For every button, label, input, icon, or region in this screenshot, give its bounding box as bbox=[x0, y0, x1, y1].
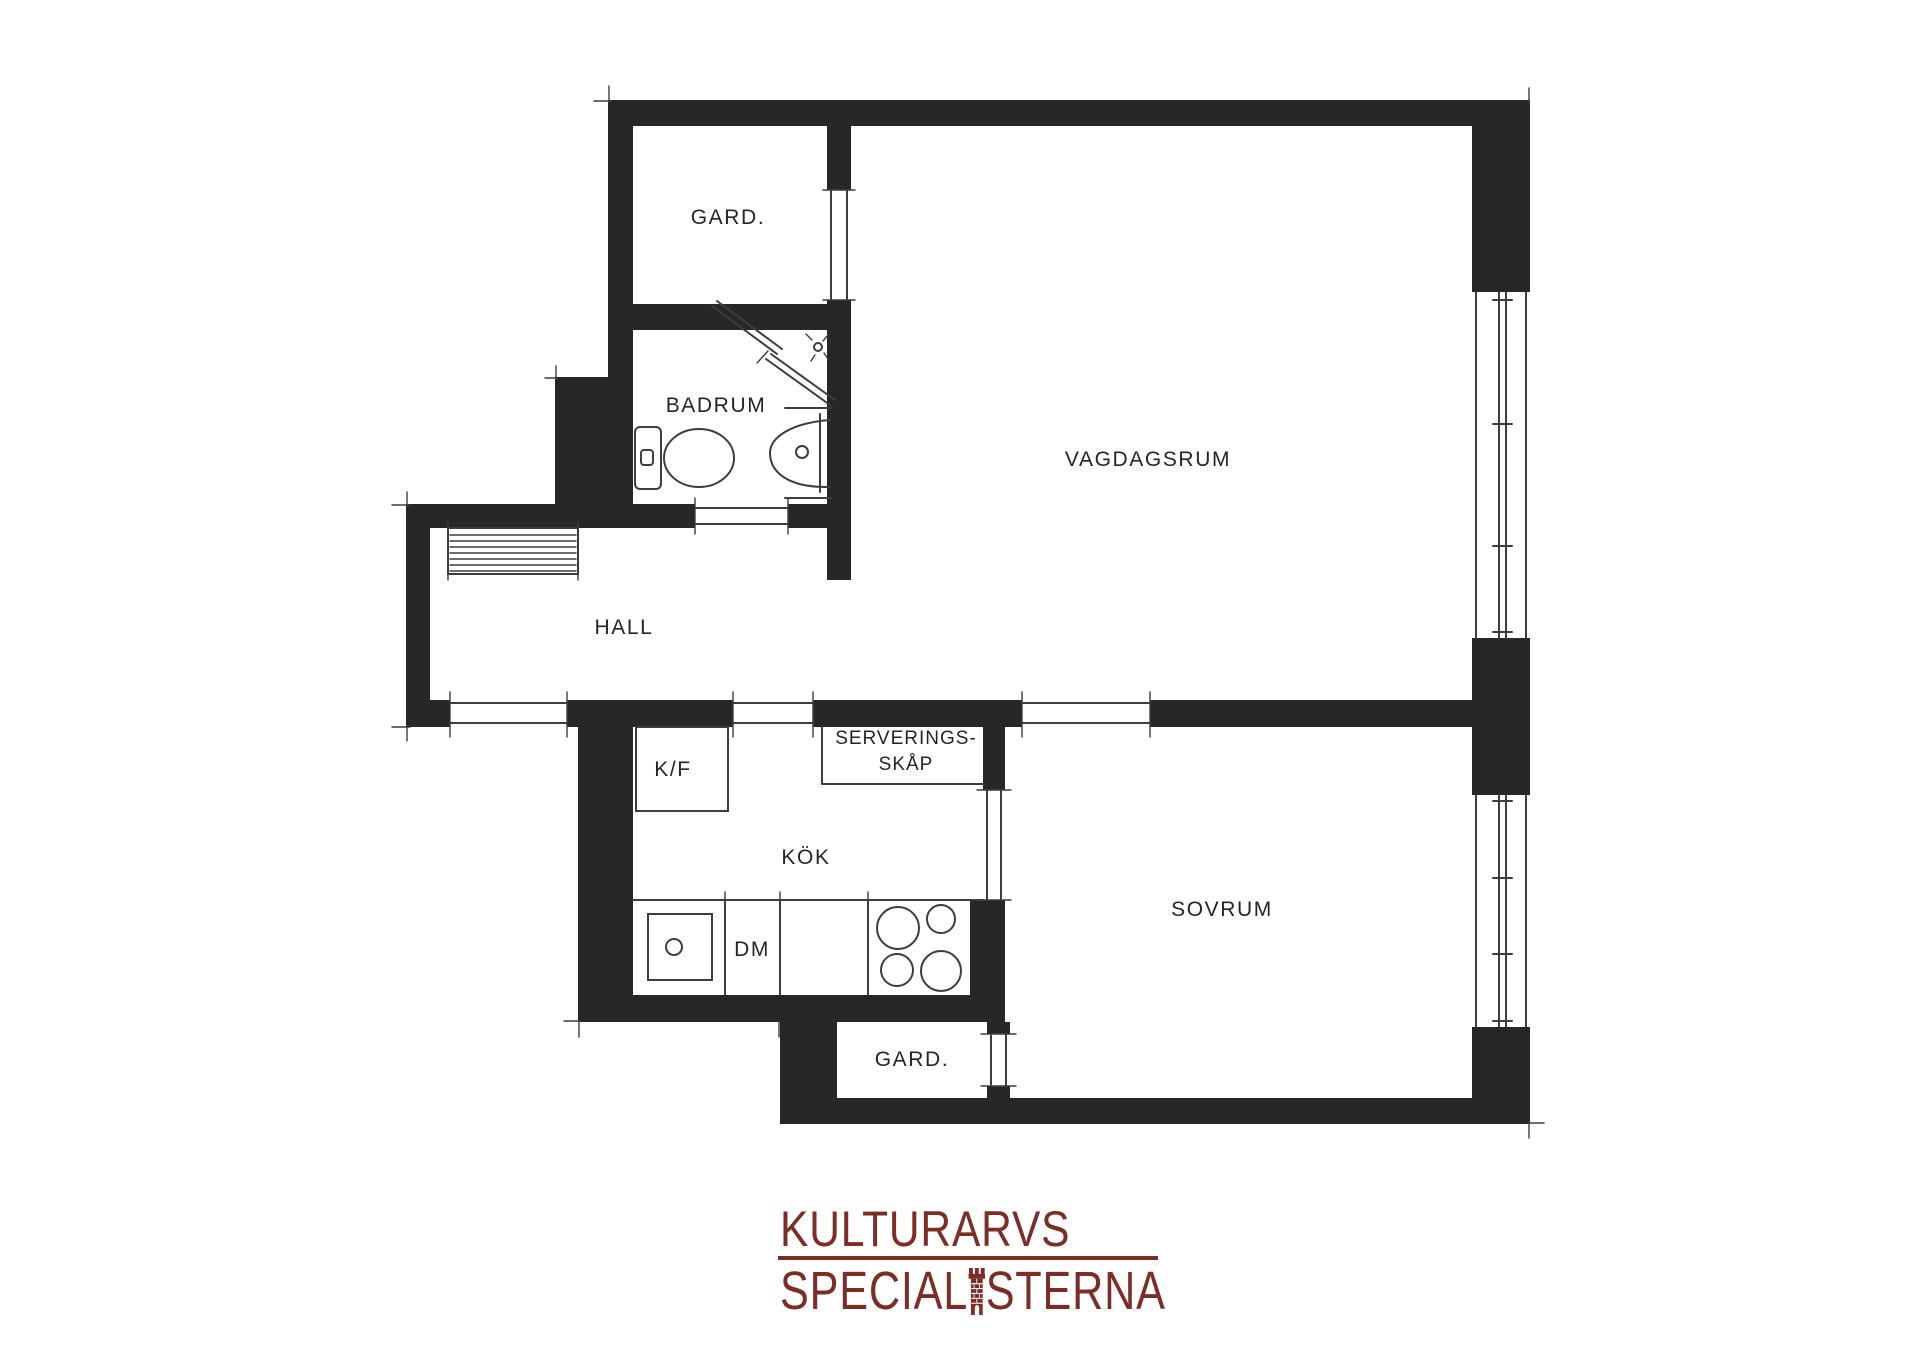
brick-tower-icon bbox=[968, 1268, 986, 1315]
room-label-gard-top: GARD. bbox=[691, 206, 766, 230]
kok-sovrum-door-opening bbox=[977, 790, 1011, 900]
vagdagsrum-window-icon bbox=[1476, 292, 1526, 638]
hall-kok-door-opening bbox=[733, 692, 813, 737]
floor-plan-drawing bbox=[0, 0, 1920, 1357]
washbasin-icon bbox=[770, 408, 831, 498]
sketch-ticks bbox=[392, 86, 1544, 1138]
room-label-sovrum: SOVRUM bbox=[1171, 898, 1273, 922]
coat-rack-icon bbox=[448, 522, 578, 580]
kitchen-sink-icon bbox=[648, 914, 712, 980]
walls bbox=[406, 100, 1530, 1124]
shower-head-icon bbox=[806, 334, 829, 361]
floor-plan-page: GARD. BADRUM VAGDAGSRUM HALL SERVERINGS-… bbox=[0, 0, 1920, 1357]
stove-icon bbox=[877, 905, 961, 991]
badrum-door-opening bbox=[695, 498, 788, 534]
toilet-icon bbox=[635, 427, 734, 489]
gard-bottom-door-opening bbox=[981, 1034, 1016, 1086]
logo-line2-suffix: STERNA bbox=[986, 1261, 1166, 1321]
room-label-serveringsskap: SERVERINGS- SKÅP bbox=[835, 726, 977, 778]
gard-top-door-opening bbox=[823, 190, 855, 300]
room-label-hall: HALL bbox=[595, 616, 654, 640]
serveringsskap-line2: SKÅP bbox=[835, 752, 977, 778]
room-label-kok: KÖK bbox=[781, 846, 830, 870]
sovrum-window-icon bbox=[1476, 795, 1526, 1027]
serveringsskap-line1: SERVERINGS- bbox=[835, 726, 977, 752]
appliance-label-fridge-freezer: K/F bbox=[654, 758, 691, 782]
room-label-vagdagsrum: VAGDAGSRUM bbox=[1065, 448, 1231, 472]
logo-line2-prefix: SPECIAL bbox=[780, 1261, 968, 1321]
appliance-label-dishwasher: DM bbox=[734, 938, 770, 962]
room-label-badrum: BADRUM bbox=[666, 394, 767, 418]
logo-line-2: SPECIAL bbox=[780, 1264, 1166, 1318]
logo-underline bbox=[778, 1256, 1158, 1260]
entrance-opening bbox=[450, 692, 567, 737]
vagdagsrum-sovrum-door-opening bbox=[1022, 692, 1150, 737]
logo: KULTURARVS SPECIAL bbox=[780, 1204, 1200, 1254]
logo-line-1: KULTURARVS bbox=[780, 1204, 1137, 1254]
room-label-gard-bottom: GARD. bbox=[875, 1048, 950, 1072]
